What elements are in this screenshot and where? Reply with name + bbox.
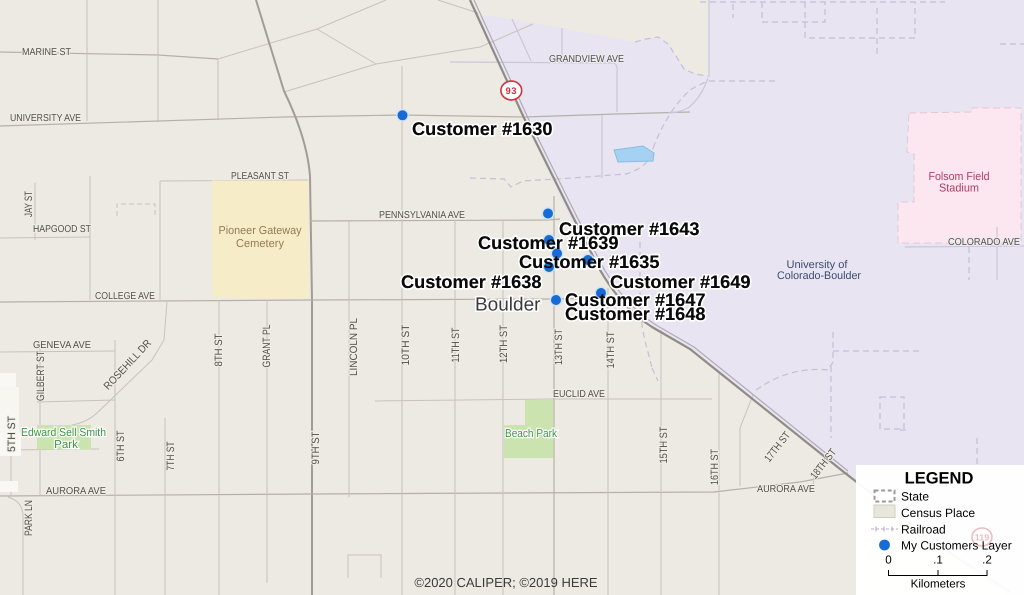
- svg-text:Customer #1630: Customer #1630: [412, 119, 553, 139]
- svg-text:GRANT PL: GRANT PL: [261, 324, 273, 367]
- svg-text:12TH ST: 12TH ST: [498, 325, 510, 363]
- svg-text:7TH ST: 7TH ST: [165, 441, 177, 470]
- svg-text:PARK LN: PARK LN: [23, 500, 35, 536]
- svg-text:LINCOLN PL: LINCOLN PL: [348, 318, 360, 376]
- svg-text:Cemetery: Cemetery: [236, 238, 284, 250]
- svg-text:14TH ST: 14TH ST: [605, 331, 617, 368]
- svg-text:Railroad: Railroad: [901, 522, 946, 536]
- svg-text:0: 0: [885, 554, 891, 567]
- svg-text:93: 93: [506, 86, 518, 97]
- svg-text:16TH ST: 16TH ST: [709, 449, 721, 485]
- svg-text:PENNSYLVANIA AVE: PENNSYLVANIA AVE: [379, 210, 465, 221]
- svg-text:9TH ST: 9TH ST: [310, 431, 322, 464]
- svg-text:Census Place: Census Place: [901, 506, 975, 520]
- svg-text:Customer #1638: Customer #1638: [401, 272, 542, 292]
- svg-text:6TH ST: 6TH ST: [115, 430, 127, 461]
- svg-text:Beach Park: Beach Park: [505, 428, 557, 440]
- svg-text:Folsom Field: Folsom Field: [929, 171, 990, 183]
- svg-text:COLORADO AVE: COLORADO AVE: [948, 237, 1020, 248]
- svg-text:Kilometers: Kilometers: [911, 578, 966, 591]
- svg-text:My Customers Layer: My Customers Layer: [901, 539, 1012, 553]
- svg-text:13TH ST: 13TH ST: [553, 329, 565, 365]
- svg-text:UNIVERSITY AVE: UNIVERSITY AVE: [10, 113, 81, 124]
- svg-text:AURORA AVE: AURORA AVE: [46, 486, 106, 497]
- svg-text:GRANDVIEW AVE: GRANDVIEW AVE: [549, 54, 624, 65]
- svg-text:.1: .1: [933, 554, 943, 567]
- svg-text:MARINE ST: MARINE ST: [22, 47, 71, 58]
- svg-text:PLEASANT ST: PLEASANT ST: [231, 171, 289, 182]
- svg-text:COLLEGE AVE: COLLEGE AVE: [95, 291, 155, 302]
- svg-text:Customer #1639: Customer #1639: [478, 233, 619, 253]
- svg-text:©2020 CALIPER; ©2019 HERE: ©2020 CALIPER; ©2019 HERE: [414, 575, 598, 590]
- svg-text:Edward Sell Smith: Edward Sell Smith: [21, 427, 106, 439]
- svg-text:Pioneer Gateway: Pioneer Gateway: [219, 225, 302, 237]
- svg-text:Park: Park: [54, 439, 78, 451]
- svg-text:Customer #1649: Customer #1649: [610, 272, 751, 292]
- svg-text:State: State: [901, 490, 929, 504]
- svg-text:Colorado-Boulder: Colorado-Boulder: [777, 270, 861, 282]
- svg-text:JAY ST: JAY ST: [23, 191, 35, 217]
- svg-text:10TH ST: 10TH ST: [400, 324, 412, 365]
- svg-text:Stadium: Stadium: [939, 183, 979, 195]
- svg-text:Customer #1635: Customer #1635: [519, 252, 660, 272]
- svg-text:Boulder: Boulder: [475, 295, 541, 316]
- svg-text:8TH ST: 8TH ST: [213, 333, 225, 366]
- svg-text:AURORA AVE: AURORA AVE: [757, 484, 815, 495]
- svg-text:GENEVA AVE: GENEVA AVE: [33, 340, 91, 351]
- svg-text:GILBERT ST: GILBERT ST: [35, 351, 47, 401]
- svg-text:EUCLID AVE: EUCLID AVE: [553, 389, 605, 400]
- svg-text:HAPGOOD ST: HAPGOOD ST: [33, 224, 91, 235]
- svg-text:5TH ST: 5TH ST: [6, 416, 18, 452]
- svg-text:LEGEND: LEGEND: [905, 470, 974, 488]
- svg-text:15TH ST: 15TH ST: [658, 426, 670, 463]
- svg-text:Customer #1648: Customer #1648: [565, 304, 706, 324]
- svg-text:11TH ST: 11TH ST: [450, 327, 462, 362]
- svg-text:.2: .2: [982, 554, 992, 567]
